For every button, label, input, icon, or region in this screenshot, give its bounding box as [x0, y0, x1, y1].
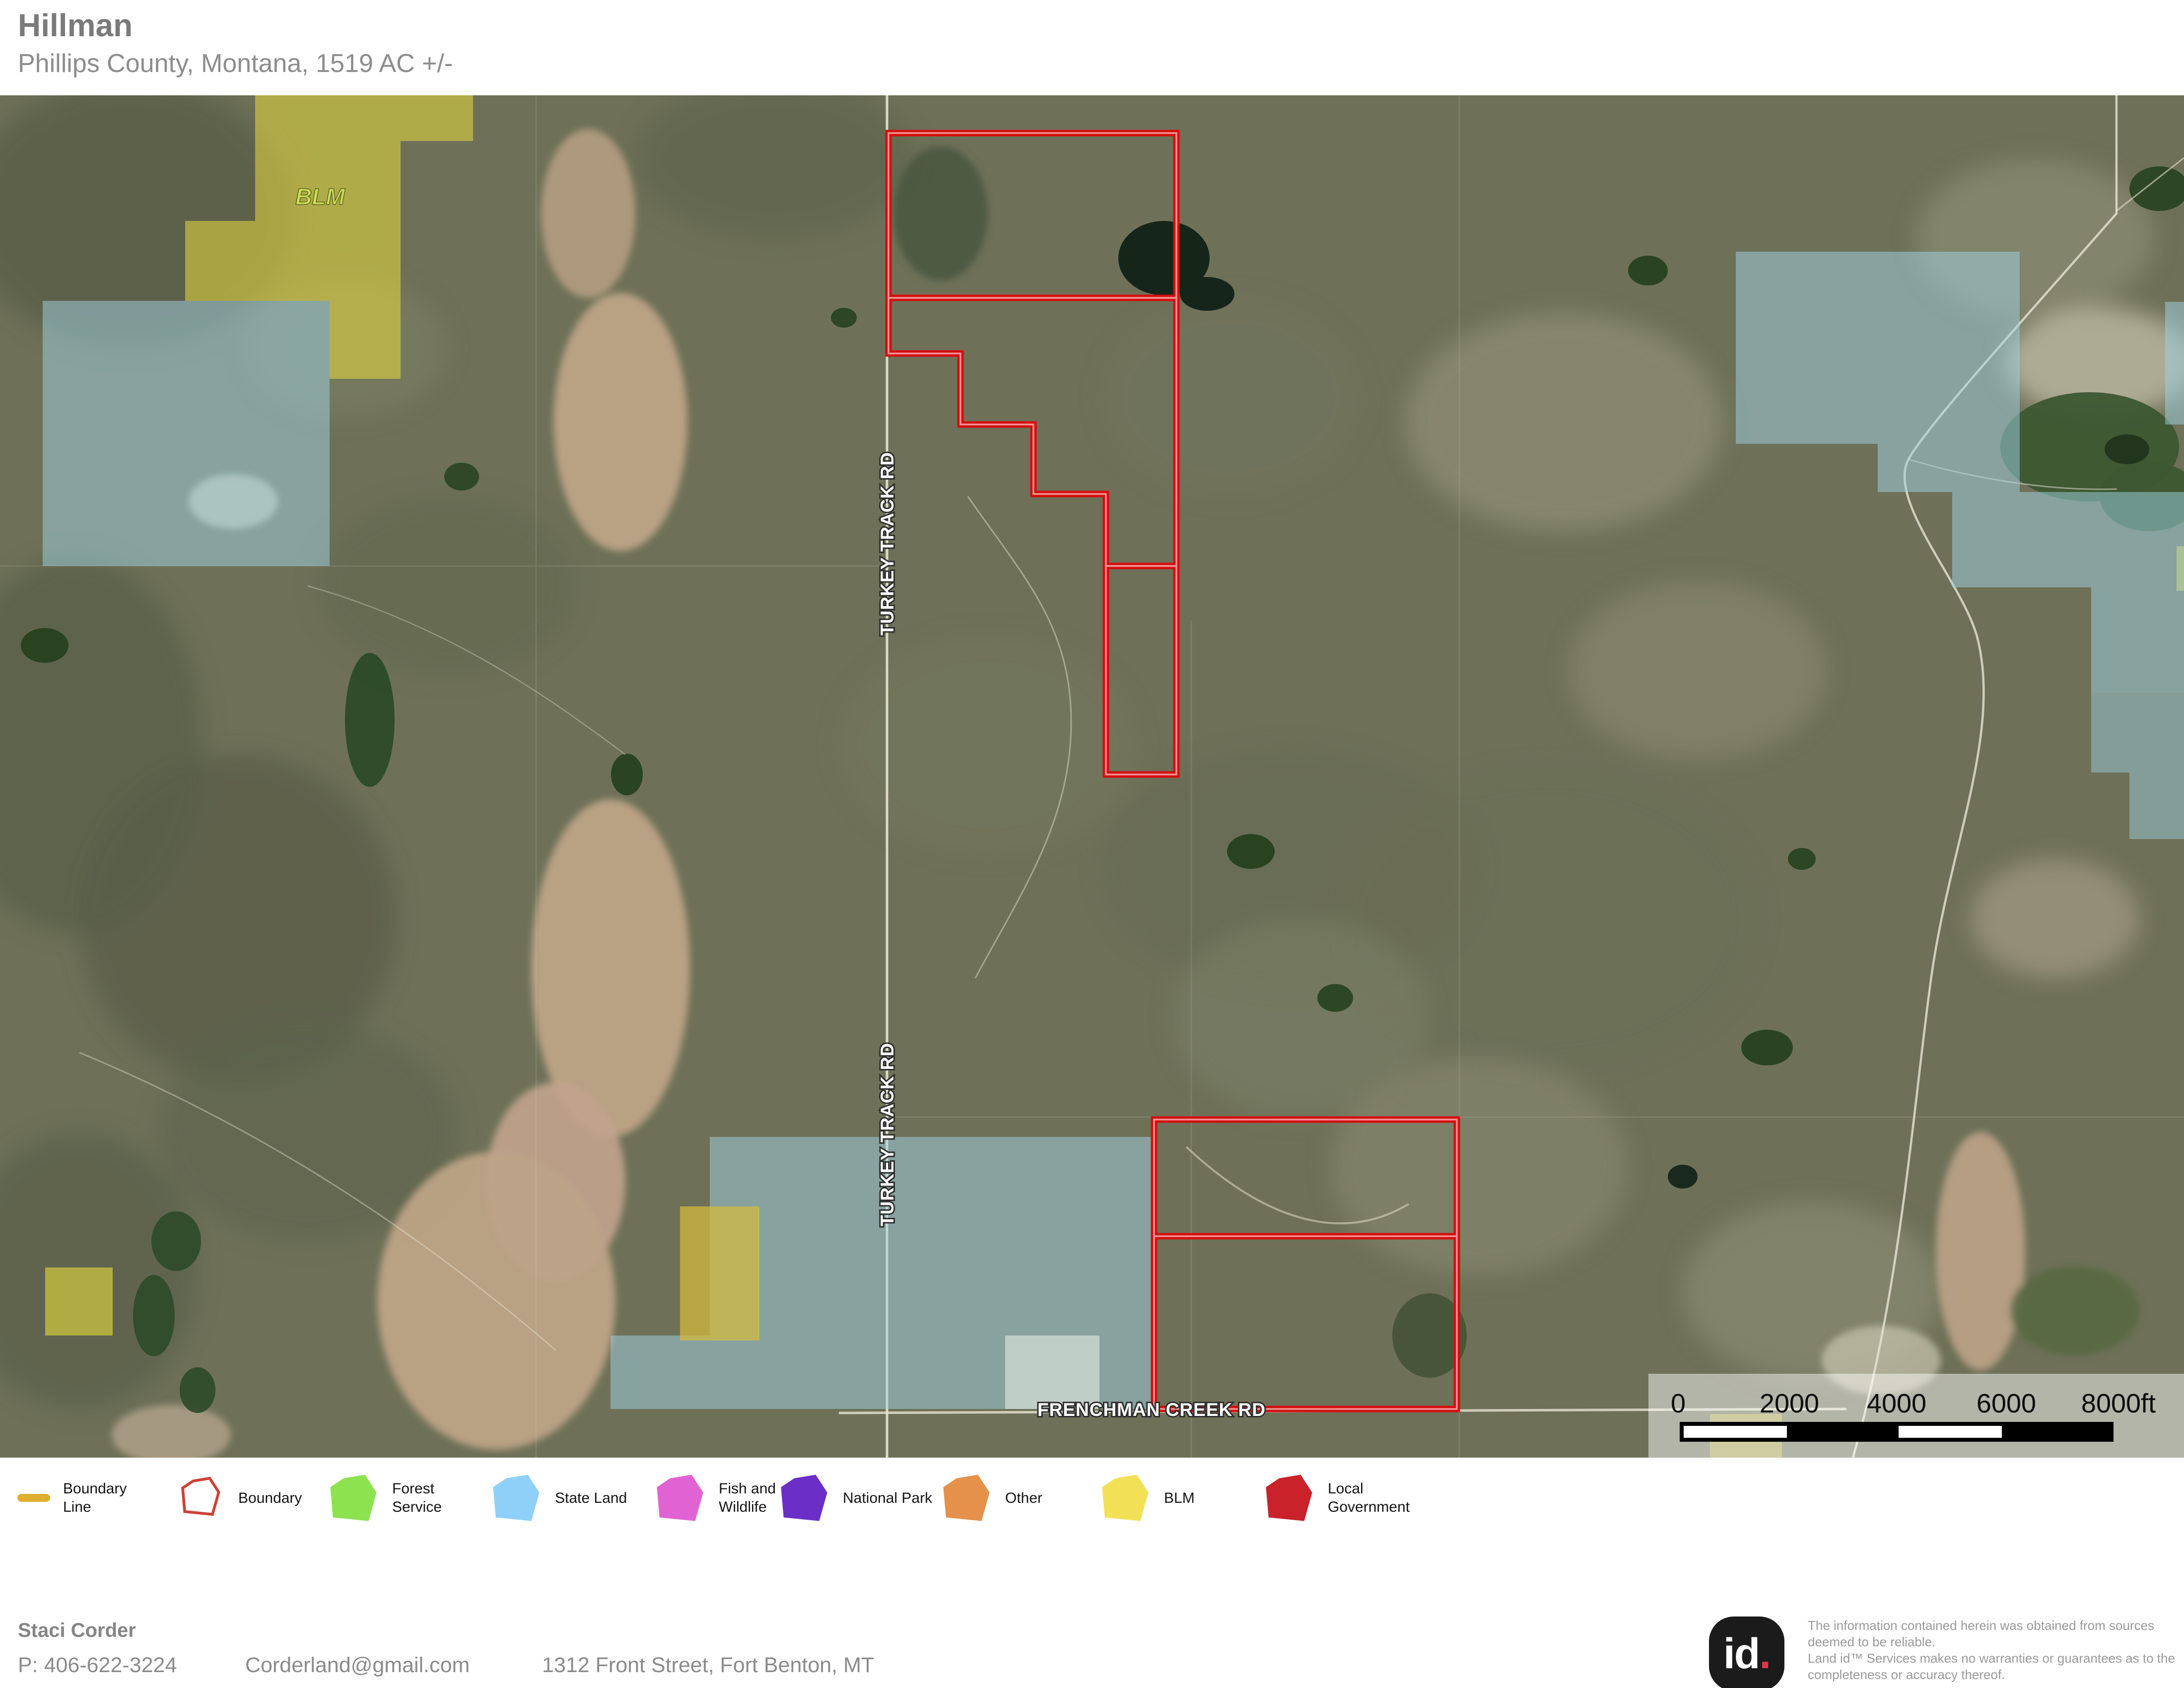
state-land-overlay-east-low: [2091, 587, 2184, 693]
legend-item-label: ForestService: [392, 1479, 442, 1516]
national-park-swatch-icon: [778, 1472, 830, 1524]
other-swatch-icon: [941, 1472, 992, 1524]
blm-area-label: BLM: [295, 184, 345, 210]
agent-phone: P: 406-622-3224: [18, 1653, 177, 1678]
page-subtitle: Phillips County, Montana, 1519 AC +/-: [18, 49, 453, 78]
legend-item-forest-service: ForestService: [328, 1471, 442, 1525]
legend-item-fish-and-wildlife: Fish andWildlife: [654, 1471, 776, 1525]
legend-item-label: LocalGovernment: [1328, 1479, 1410, 1516]
state-land-overlay-step: [1878, 444, 2020, 492]
scalebar-tick-0: 0: [1671, 1389, 1686, 1418]
header: Hillman Phillips County, Montana, 1519 A…: [0, 0, 2184, 95]
legend: BoundaryLineBoundaryForestServiceState L…: [0, 1465, 2184, 1534]
disclaimer-line: deemed to be reliable.: [1808, 1634, 2184, 1650]
satellite-map: BLM TURKEY TRACK RD TURKEY TRACK RD FREN…: [0, 95, 2184, 1458]
blm-swatch-icon: [1099, 1472, 1151, 1524]
page-title: Hillman: [18, 7, 133, 44]
local-government-swatch-icon: [1263, 1472, 1315, 1524]
state-land-overlay-northeast: [1736, 252, 2020, 444]
legend-item-label: Boundary: [238, 1489, 302, 1507]
forest-service-swatch-icon: [328, 1472, 379, 1524]
blm-overlay-west: [45, 1267, 113, 1336]
page: Hillman Phillips County, Montana, 1519 A…: [0, 0, 2184, 1688]
map-canvas: BLM TURKEY TRACK RD TURKEY TRACK RD FREN…: [0, 95, 2184, 1458]
disclaimer-line: Land id™ Services makes no warranties or…: [1808, 1650, 2184, 1667]
state-land-overlay-east-low3: [2129, 773, 2184, 839]
state-land-overlay-northwest: [43, 301, 330, 566]
fish-and-wildlife-swatch-icon: [654, 1472, 706, 1524]
scalebar-tick-3: 6000: [1977, 1389, 2036, 1418]
agent-name: Staci Corder: [18, 1619, 136, 1642]
state-land-swatch-icon: [490, 1472, 542, 1524]
disclaimer: The information contained herein was obt…: [1808, 1618, 2184, 1683]
contact-row: P: 406-622-3224 Corderland@gmail.com 131…: [0, 1653, 1092, 1683]
state-land-overlay-east: [1952, 492, 2184, 587]
legend-item-local-government: LocalGovernment: [1263, 1471, 1410, 1525]
state-land-overlay-east-strip: [2165, 302, 2184, 424]
land-id-logo: id.: [1709, 1617, 1784, 1688]
scalebar-tick-4: 8000ft: [2081, 1389, 2156, 1418]
legend-item-blm: BLM: [1099, 1471, 1195, 1525]
boundary-line-swatch-icon: [17, 1494, 50, 1502]
scalebar-tick-2: 4000: [1867, 1389, 1926, 1418]
boundary-swatch-icon: [174, 1472, 225, 1524]
land-id-logo-dot: .: [1759, 1630, 1770, 1678]
state-land-overlay-east-low2: [2091, 693, 2184, 773]
legend-item-label: State Land: [555, 1489, 627, 1507]
land-id-logo-text: id.: [1723, 1629, 1770, 1679]
legend-item-label: Fish andWildlife: [719, 1479, 776, 1516]
legend-item-state-land: State Land: [490, 1471, 627, 1525]
frenchman-creek-road-label: FRENCHMAN CREEK RD: [1037, 1400, 1266, 1420]
disclaimer-line: The information contained herein was obt…: [1808, 1618, 2184, 1634]
disclaimer-line: completeness or accuracy thereof.: [1808, 1667, 2184, 1683]
legend-item-label: National Park: [843, 1489, 932, 1507]
turkey-track-road-label-south: TURKEY TRACK RD: [877, 1043, 897, 1226]
legend-item-national-park: National Park: [778, 1471, 932, 1525]
blm-overlay-mid: [680, 1206, 759, 1340]
legend-item-label: BLM: [1164, 1489, 1195, 1507]
legend-item-boundary-line: BoundaryLine: [17, 1471, 127, 1525]
agent-address: 1312 Front Street, Fort Benton, MT: [542, 1653, 874, 1678]
scalebar: 0 2000 4000 6000 8000ft: [1648, 1374, 2184, 1458]
agent-email: Corderland@gmail.com: [245, 1653, 470, 1678]
scalebar-tick-1: 2000: [1760, 1389, 1819, 1418]
legend-item-boundary: Boundary: [174, 1471, 302, 1525]
legend-item-label: BoundaryLine: [63, 1479, 127, 1516]
legend-item-label: Other: [1005, 1489, 1042, 1507]
legend-item-other: Other: [941, 1471, 1042, 1525]
pale-field-patch: [1005, 1336, 1099, 1409]
turkey-track-road-label-north: TURKEY TRACK RD: [877, 452, 897, 635]
